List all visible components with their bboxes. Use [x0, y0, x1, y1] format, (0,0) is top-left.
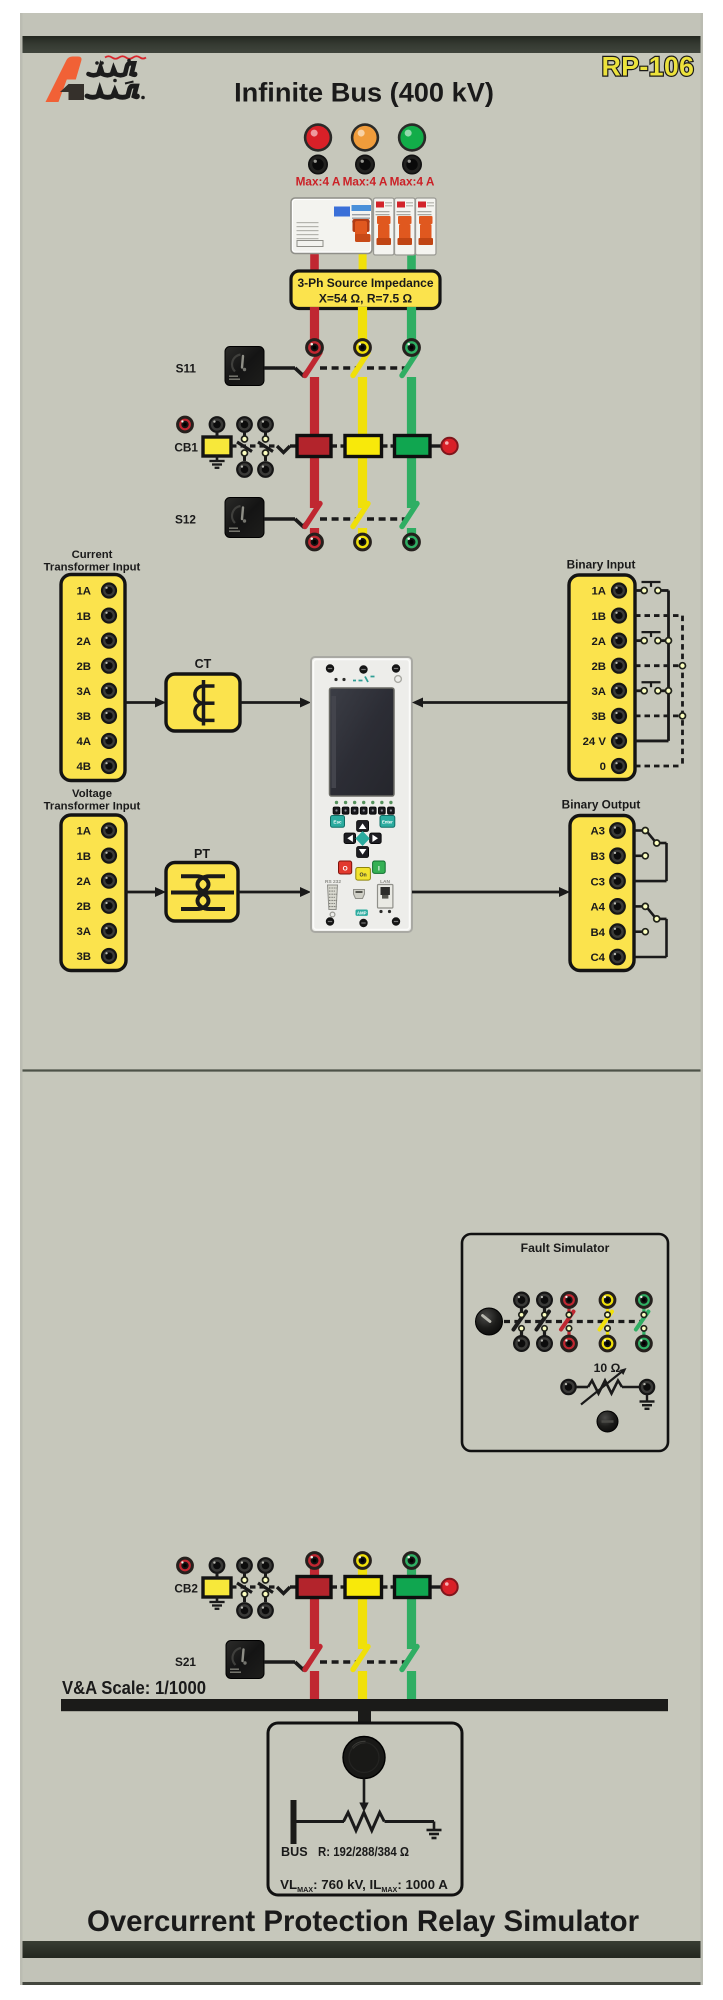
svg-text:3A: 3A	[76, 686, 91, 698]
svg-text:3A: 3A	[591, 686, 606, 698]
svg-text:Transformer Input: Transformer Input	[44, 801, 141, 813]
svg-text:24 V: 24 V	[583, 736, 607, 748]
svg-text:1A: 1A	[591, 586, 606, 598]
svg-text:C4: C4	[590, 952, 605, 964]
svg-text:2B: 2B	[76, 901, 91, 913]
svg-text:R: 192/288/384 Ω: R: 192/288/384 Ω	[318, 1845, 409, 1859]
svg-text:Transformer Input: Transformer Input	[44, 562, 141, 574]
svg-text:Max:4 A: Max:4 A	[343, 175, 388, 189]
svg-text:AMP: AMP	[357, 910, 367, 915]
svg-text:On: On	[359, 873, 366, 879]
svg-text:Max:4 A: Max:4 A	[390, 175, 435, 189]
svg-text:B3: B3	[590, 851, 605, 863]
svg-text:1B: 1B	[591, 611, 606, 623]
svg-text:3B: 3B	[76, 951, 91, 963]
svg-text:A3: A3	[590, 826, 605, 838]
svg-text:10 Ω: 10 Ω	[594, 1361, 621, 1375]
svg-text:B4: B4	[590, 927, 605, 939]
svg-text:Binary Input: Binary Input	[567, 558, 636, 572]
svg-text:Esc: Esc	[333, 820, 342, 825]
svg-text:CT: CT	[195, 657, 212, 671]
svg-text:Max:4 A: Max:4 A	[296, 175, 341, 189]
svg-text:CB2: CB2	[174, 1582, 198, 1596]
svg-text:2B: 2B	[76, 661, 91, 673]
svg-text:S12: S12	[175, 513, 196, 527]
svg-text:1B: 1B	[76, 851, 91, 863]
svg-text:Infinite Bus (400 kV): Infinite Bus (400 kV)	[234, 77, 494, 108]
svg-text:3A: 3A	[76, 926, 91, 938]
svg-text:I: I	[378, 865, 380, 872]
svg-text:Fault Simulator: Fault Simulator	[521, 1241, 610, 1255]
svg-text:RS 232: RS 232	[325, 879, 341, 885]
svg-text:PT: PT	[194, 847, 210, 861]
svg-text:4A: 4A	[76, 736, 91, 748]
svg-text:Voltage: Voltage	[72, 788, 112, 800]
svg-text:3-Ph Source Impedance: 3-Ph Source Impedance	[297, 276, 433, 290]
svg-text:1A: 1A	[76, 586, 91, 598]
svg-text:X=54 Ω, R=7.5 Ω: X=54 Ω, R=7.5 Ω	[319, 292, 413, 306]
svg-text:V&A Scale: 1/1000: V&A Scale: 1/1000	[62, 1677, 206, 1698]
svg-text:S21: S21	[175, 1655, 196, 1669]
svg-text:Binary Output: Binary Output	[562, 798, 641, 812]
svg-text:Enter: Enter	[382, 820, 393, 825]
svg-text:3B: 3B	[591, 711, 606, 723]
svg-text:2A: 2A	[76, 876, 91, 888]
svg-text:Overcurrent Protection Relay S: Overcurrent Protection Relay Simulator	[87, 1905, 639, 1938]
svg-text:RP-106: RP-106	[602, 52, 695, 82]
svg-text:2A: 2A	[76, 636, 91, 648]
svg-text:CB1: CB1	[174, 441, 198, 455]
svg-text:A4: A4	[590, 902, 605, 914]
svg-text:1B: 1B	[76, 611, 91, 623]
svg-text:2B: 2B	[591, 661, 606, 673]
svg-text:S11: S11	[176, 362, 197, 376]
svg-text:4B: 4B	[76, 761, 91, 773]
svg-text:BUS: BUS	[281, 1845, 308, 1859]
svg-text:0: 0	[600, 761, 606, 773]
svg-text:2A: 2A	[591, 636, 606, 648]
svg-text:C3: C3	[590, 876, 605, 888]
svg-text:3B: 3B	[76, 711, 91, 723]
svg-text:O: O	[343, 866, 348, 873]
svg-text:1A: 1A	[76, 826, 91, 838]
svg-text:Current: Current	[72, 549, 113, 561]
